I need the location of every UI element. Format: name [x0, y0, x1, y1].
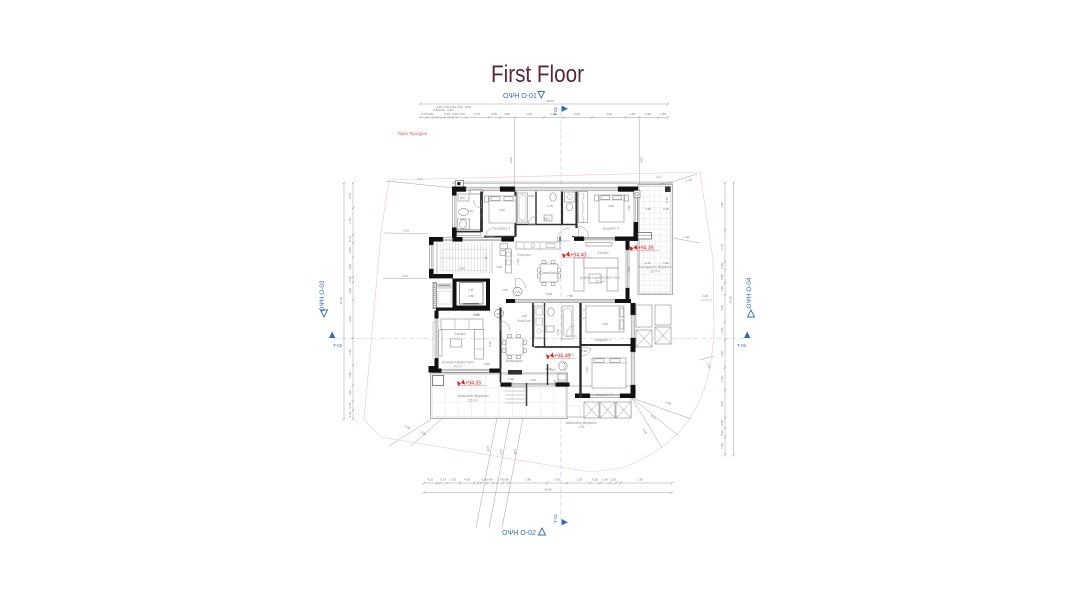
svg-text:6.03: 6.03 [509, 157, 513, 163]
svg-text:4.20: 4.20 [488, 341, 492, 347]
svg-text:Δωμάτιο 1: Δωμάτιο 1 [594, 338, 611, 342]
svg-text:0.60: 0.60 [545, 367, 551, 371]
svg-text:0.62: 0.62 [465, 105, 471, 109]
svg-text:WC: WC [544, 217, 550, 221]
svg-text:0.70: 0.70 [421, 112, 427, 116]
svg-text:WC: WC [460, 196, 466, 200]
svg-text:0.50: 0.50 [592, 478, 598, 482]
svg-text:1.05: 1.05 [348, 372, 352, 378]
svg-text:1.83: 1.83 [526, 112, 532, 116]
svg-text:3.45: 3.45 [459, 267, 465, 271]
svg-text:Σαλόνι: Σαλόνι [455, 332, 466, 336]
svg-text:0.50: 0.50 [720, 420, 724, 426]
svg-text:0.35: 0.35 [720, 430, 724, 436]
svg-text:70 m²: 70 m² [453, 365, 463, 369]
svg-text:4.88: 4.88 [627, 267, 631, 273]
svg-text:0.40: 0.40 [443, 105, 449, 109]
svg-text:OΨH O-01: OΨH O-01 [503, 93, 537, 100]
svg-text:Ακάλυπτη Βεράντα: Ακάλυπτη Βεράντα [458, 394, 490, 398]
svg-text:-1%: -1% [578, 425, 585, 429]
svg-text:2.35: 2.35 [450, 478, 456, 482]
svg-text:2.60: 2.60 [574, 112, 580, 116]
svg-text:Καλυμμένη Βεράντα: Καλυμμένη Βεράντα [639, 265, 673, 269]
svg-text:16.65: 16.65 [544, 488, 552, 492]
svg-text:0.40: 0.40 [444, 112, 450, 116]
svg-text:0.45: 0.45 [487, 478, 493, 482]
svg-text:32 m²: 32 m² [595, 280, 605, 284]
svg-text:0.40: 0.40 [457, 105, 463, 109]
svg-text:2.60: 2.60 [504, 112, 510, 116]
svg-text:Δωμάτιο 2: Δωμάτιο 2 [595, 393, 612, 397]
svg-text:2.44: 2.44 [402, 274, 408, 278]
svg-text:0.75: 0.75 [348, 402, 352, 408]
svg-text:3.70: 3.70 [720, 244, 724, 250]
svg-text:Κουζίνα: Κουζίνα [518, 319, 532, 323]
svg-text:5.25: 5.25 [663, 207, 669, 211]
svg-text:3.02: 3.02 [530, 378, 536, 382]
svg-text:2.40: 2.40 [348, 411, 352, 417]
svg-text:1.75: 1.75 [553, 380, 557, 386]
svg-text:1.80: 1.80 [468, 294, 474, 298]
svg-text:Διάδρομος: Διάδρομος [505, 359, 523, 363]
svg-text:1.00: 1.00 [720, 286, 724, 292]
svg-text:Δωμάτιο 1: Δωμάτιο 1 [493, 227, 510, 231]
svg-text:3.20: 3.20 [499, 208, 505, 212]
svg-text:1.00: 1.00 [585, 367, 589, 373]
svg-text:Κουζίνα: Κουζίνα [518, 253, 532, 257]
svg-text:OΨH O-04: OΨH O-04 [746, 277, 753, 308]
svg-text:1.40: 1.40 [521, 314, 527, 318]
svg-text:1.80: 1.80 [348, 288, 352, 294]
svg-text:4.20: 4.20 [427, 478, 433, 482]
svg-text:5.20: 5.20 [473, 313, 479, 317]
svg-text:1.75: 1.75 [547, 204, 553, 208]
svg-text:4.50: 4.50 [627, 205, 631, 211]
svg-text:0.55: 0.55 [348, 247, 352, 253]
svg-text:T-02: T-02 [737, 343, 747, 348]
svg-text:2.00: 2.00 [554, 478, 560, 482]
svg-text:0.60: 0.60 [452, 112, 458, 116]
svg-text:0.30: 0.30 [348, 276, 352, 282]
svg-text:0.40: 0.40 [436, 105, 442, 109]
svg-text:0.40: 0.40 [459, 112, 465, 116]
svg-text:0.40: 0.40 [427, 112, 433, 116]
svg-text:1.46: 1.46 [467, 209, 473, 213]
svg-text:1.80: 1.80 [556, 329, 560, 335]
svg-text:1.90: 1.90 [602, 478, 608, 482]
svg-text:1.75: 1.75 [348, 218, 352, 224]
svg-text:4.00: 4.00 [720, 401, 724, 407]
svg-text:6.10: 6.10 [665, 197, 669, 203]
svg-text:First Floor: First Floor [491, 61, 584, 88]
svg-text:1.20: 1.20 [720, 328, 724, 334]
svg-text:0.90: 0.90 [491, 112, 497, 116]
svg-text:3.92: 3.92 [403, 229, 409, 233]
svg-text:4.30: 4.30 [464, 478, 470, 482]
svg-text:OΨH O-03: OΨH O-03 [319, 280, 326, 311]
svg-text:32 m²: 32 m² [650, 270, 660, 274]
svg-text:5.28: 5.28 [546, 292, 552, 296]
svg-text:3.90: 3.90 [608, 204, 614, 208]
svg-text:1.35: 1.35 [576, 478, 582, 482]
svg-text:4.90: 4.90 [606, 112, 612, 116]
svg-text:1.40: 1.40 [516, 259, 520, 265]
svg-text:Δωμάτιο 1: Δωμάτιο 1 [602, 227, 619, 231]
svg-text:0.90: 0.90 [645, 112, 651, 116]
svg-text:1.50: 1.50 [502, 288, 508, 292]
svg-text:3.40: 3.40 [348, 349, 352, 355]
svg-text:Τραπεζαρία: Τραπεζαρία [539, 271, 559, 275]
svg-text:Όρια Τεμαχίου: Όρια Τεμαχίου [397, 131, 428, 136]
svg-text:16.65: 16.65 [546, 99, 554, 103]
svg-text:2.90: 2.90 [645, 207, 651, 211]
svg-text:3.00: 3.00 [720, 351, 724, 357]
svg-text:Σαλόνι: Σαλόνι [598, 251, 609, 255]
svg-text:4.17: 4.17 [656, 175, 663, 180]
svg-text:1.80: 1.80 [525, 478, 531, 482]
svg-text:1.60: 1.60 [508, 377, 514, 381]
svg-text:3.80: 3.80 [348, 316, 352, 322]
svg-text:0.50: 0.50 [720, 274, 724, 280]
svg-text:Lift: Lift [469, 288, 474, 292]
svg-text:3.00: 3.00 [720, 305, 724, 311]
svg-text:3.85: 3.85 [720, 202, 724, 208]
svg-text:1.05: 1.05 [348, 390, 352, 396]
svg-text:T-01: T-01 [553, 513, 558, 523]
svg-text:6.00: 6.00 [640, 157, 644, 163]
svg-text:2.40: 2.40 [720, 376, 724, 382]
svg-text:22 m²: 22 m² [468, 399, 478, 403]
svg-text:2.60: 2.60 [550, 112, 556, 116]
svg-text:0.75: 0.75 [440, 478, 446, 482]
svg-text:4.20: 4.20 [480, 213, 484, 219]
svg-text:16.30: 16.30 [339, 297, 343, 305]
svg-text:1.30: 1.30 [610, 478, 616, 482]
svg-text:16.30: 16.30 [729, 296, 733, 304]
svg-text:0.60: 0.60 [450, 105, 456, 109]
svg-text:1.65: 1.65 [660, 112, 666, 116]
svg-text:3.25: 3.25 [602, 322, 608, 326]
svg-text:1.40: 1.40 [629, 112, 635, 116]
svg-text:T-02: T-02 [333, 343, 343, 348]
svg-text:0.90: 0.90 [528, 194, 534, 198]
svg-text:1.90: 1.90 [496, 265, 502, 269]
svg-text:1.40: 1.40 [683, 235, 690, 240]
svg-text:2.70: 2.70 [474, 112, 480, 116]
svg-text:1.80: 1.80 [348, 264, 352, 270]
svg-text:2.90: 2.90 [581, 349, 587, 353]
svg-text:0.60: 0.60 [720, 263, 724, 269]
svg-text:6.65: 6.65 [484, 362, 490, 366]
svg-text:0.80: 0.80 [503, 478, 509, 482]
svg-text:7.80: 7.80 [567, 294, 573, 298]
svg-text:102: 102 [515, 290, 520, 294]
svg-text:0.70: 0.70 [348, 193, 352, 199]
svg-text:0.70: 0.70 [348, 236, 352, 242]
svg-text:OΨH O-02: OΨH O-02 [502, 530, 536, 537]
svg-text:2.48: 2.48 [702, 294, 708, 298]
svg-text:1.30: 1.30 [720, 443, 724, 449]
svg-text:1.30: 1.30 [637, 478, 643, 482]
